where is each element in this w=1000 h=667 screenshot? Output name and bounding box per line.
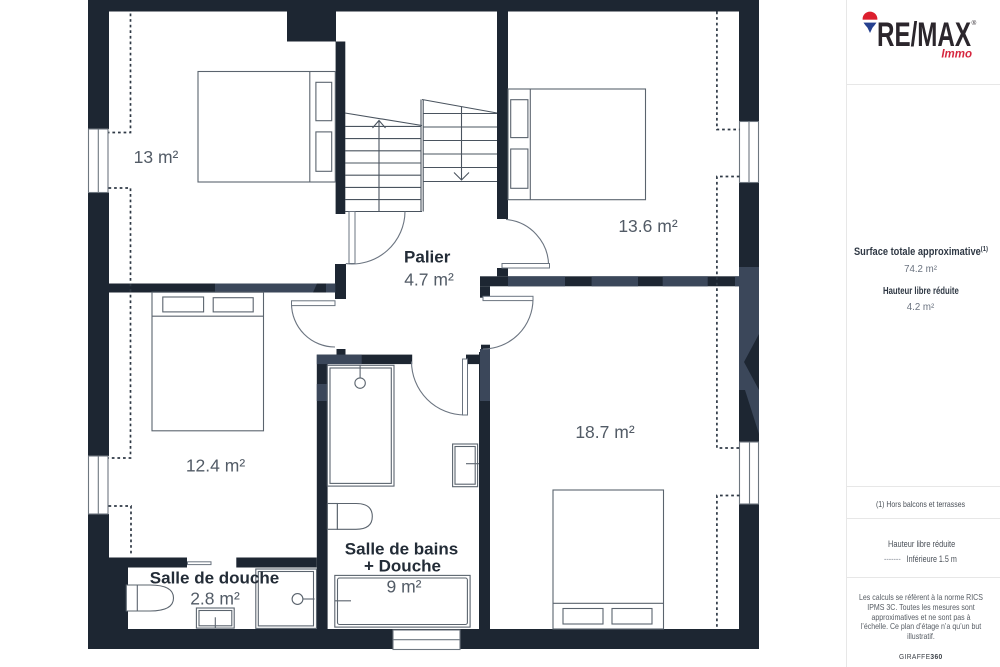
svg-text:13.6 m²: 13.6 m² xyxy=(618,216,677,236)
svg-text:Salle de douche: Salle de douche xyxy=(150,569,279,588)
svg-text:4.7 m²: 4.7 m² xyxy=(404,270,454,290)
svg-text:+ Douche: + Douche xyxy=(364,557,441,576)
svg-text:2.8 m²: 2.8 m² xyxy=(190,589,240,609)
svg-text:Immo: Immo xyxy=(941,49,972,61)
svg-text:9 m²: 9 m² xyxy=(387,577,422,597)
svg-text:Palier: Palier xyxy=(404,248,451,267)
svg-text:18.7 m²: 18.7 m² xyxy=(575,422,634,442)
svg-text:13 m²: 13 m² xyxy=(134,147,179,167)
svg-text:12.4 m²: 12.4 m² xyxy=(186,456,245,476)
svg-text:®: ® xyxy=(972,19,977,27)
